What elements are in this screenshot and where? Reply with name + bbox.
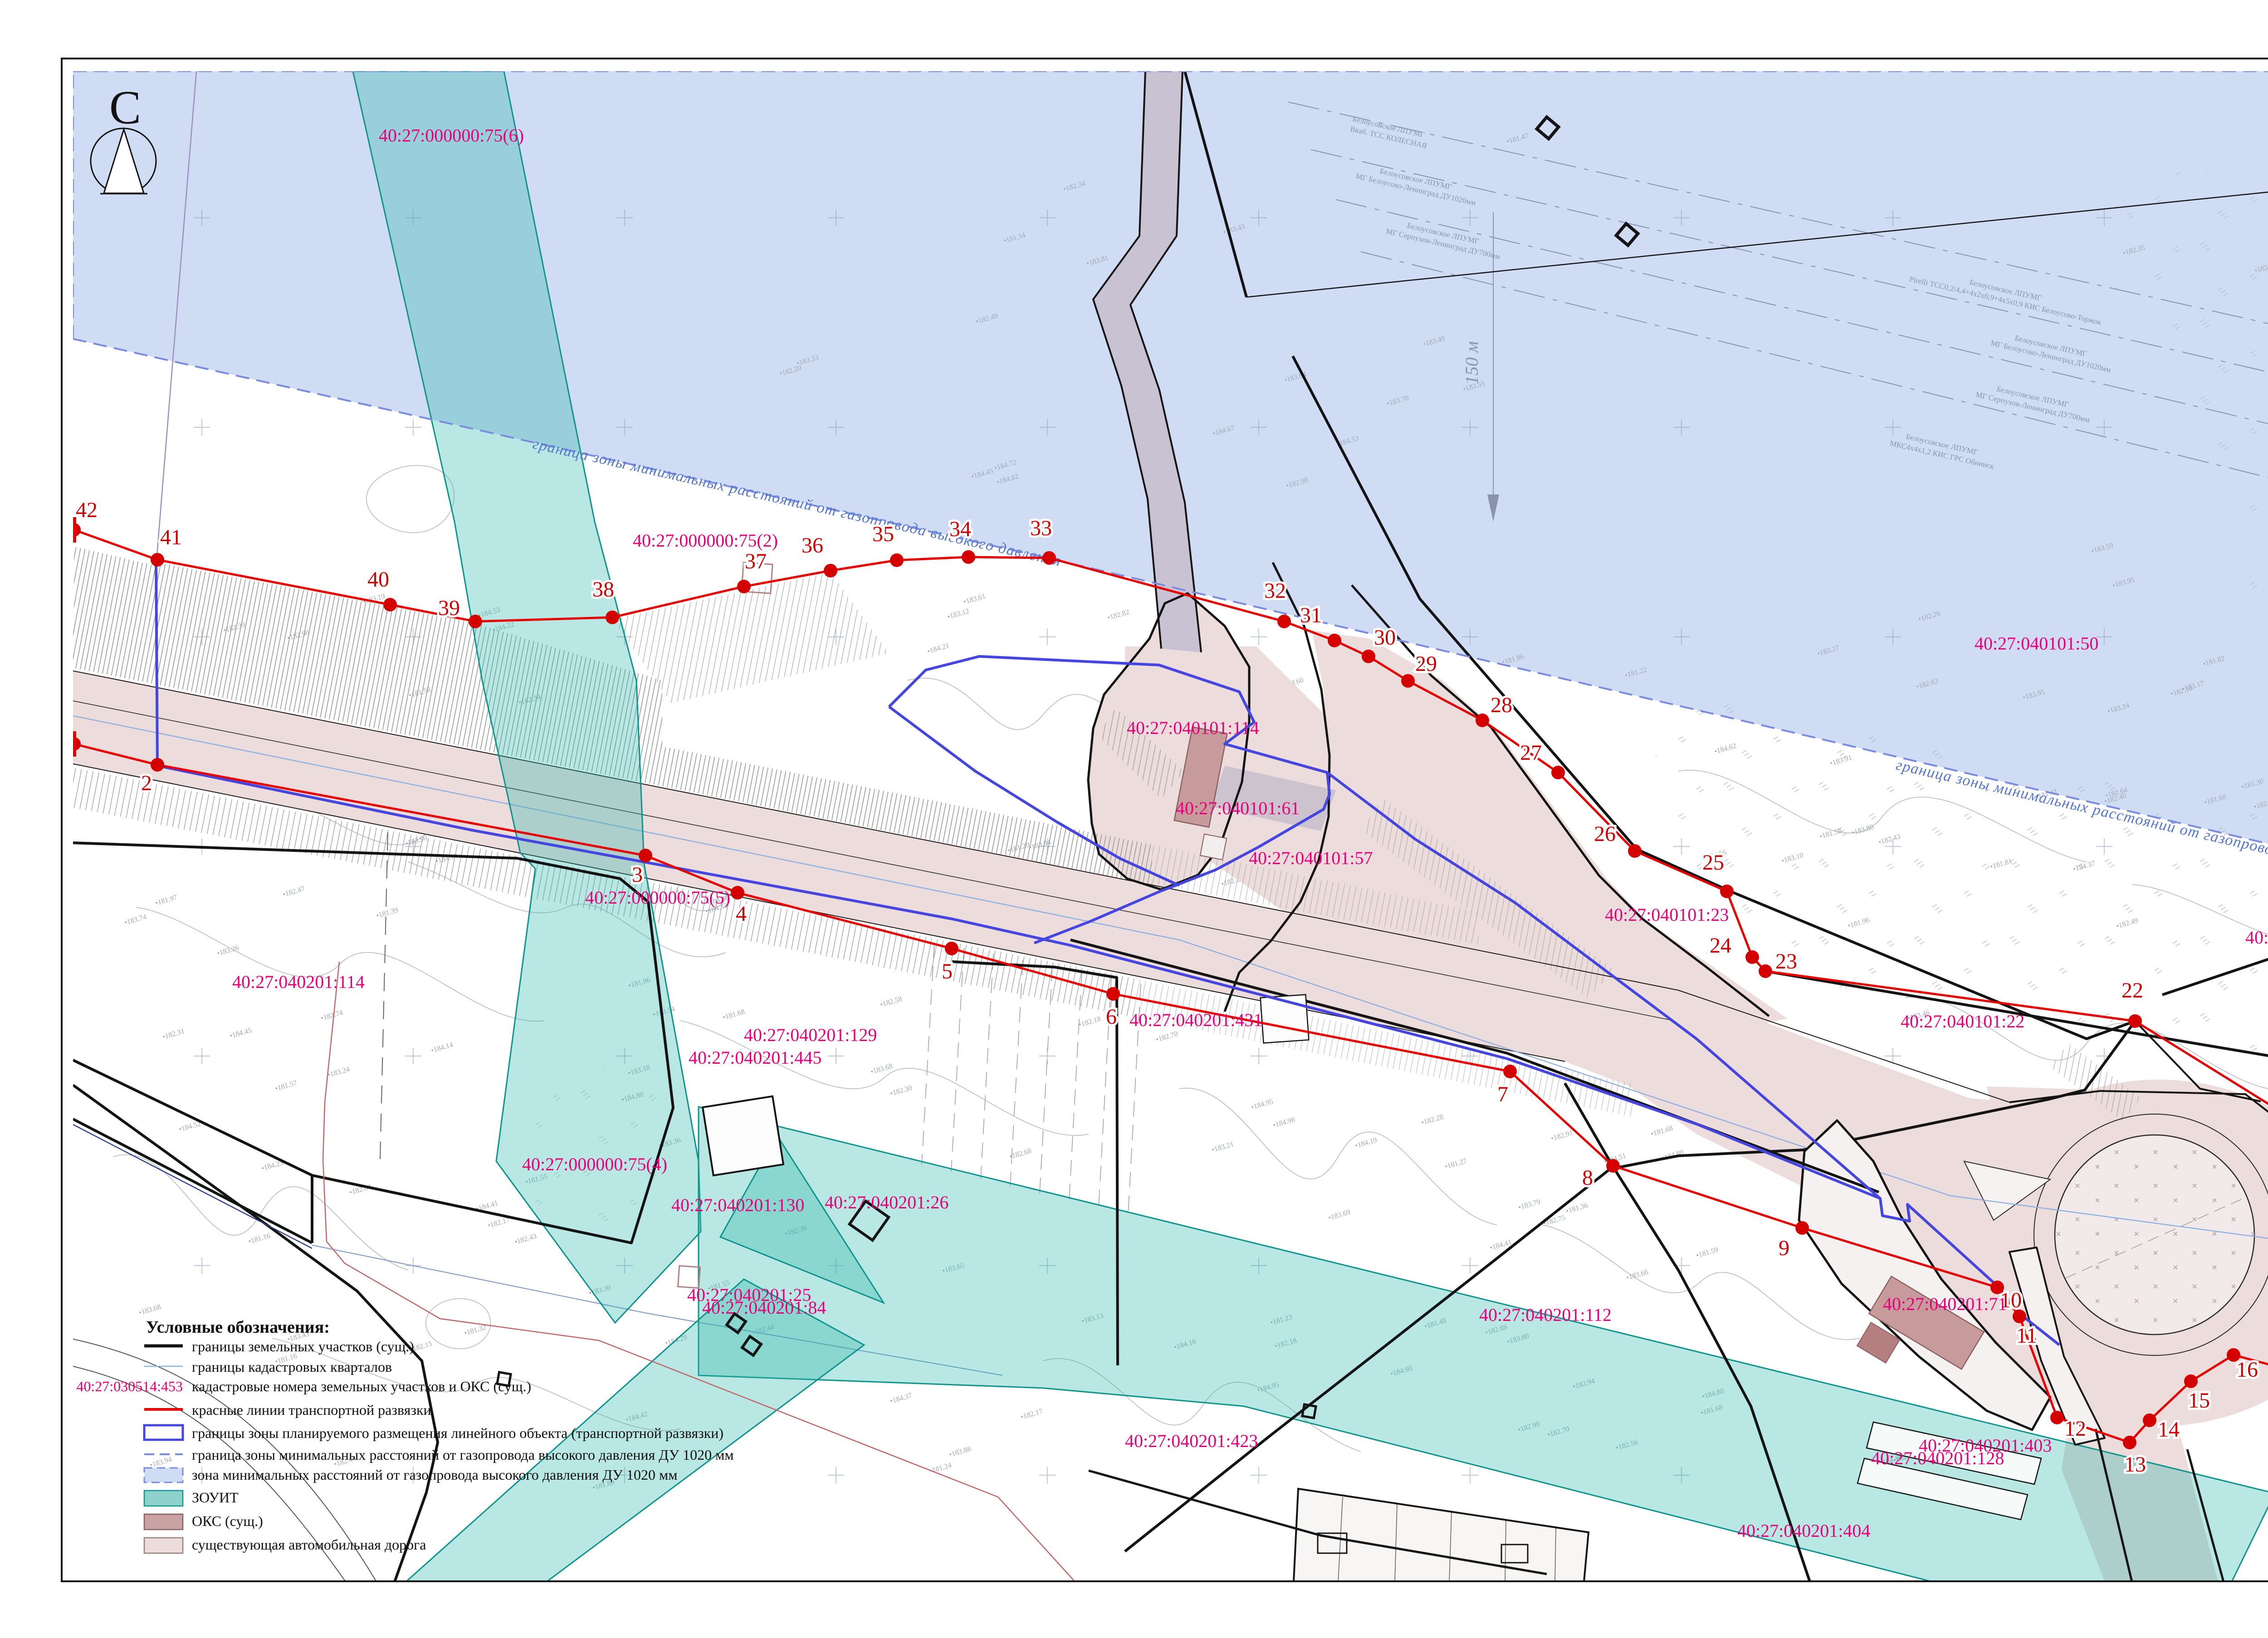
svg-text:14: 14 [2158, 1418, 2180, 1442]
svg-text:13: 13 [2124, 1452, 2146, 1477]
svg-text:24: 24 [1710, 934, 1731, 958]
svg-text:27: 27 [1520, 741, 1542, 765]
svg-text:40:27:040201:128: 40:27:040201:128 [1871, 1448, 2004, 1468]
svg-text:40:27:040101:57: 40:27:040101:57 [1249, 848, 1373, 868]
svg-text:40:27:040201:404: 40:27:040201:404 [1737, 1521, 1870, 1541]
svg-text:37: 37 [745, 549, 767, 573]
svg-text:границы земельных участков (су: границы земельных участков (сущ.) [192, 1338, 414, 1354]
svg-text:40:27:040201:112: 40:27:040201:112 [1479, 1305, 1612, 1325]
svg-text:40:27:000000:75(6): 40:27:000000:75(6) [379, 125, 524, 146]
svg-text:8: 8 [1582, 1166, 1593, 1190]
svg-text:4: 4 [736, 902, 747, 926]
svg-text:32: 32 [1264, 579, 1286, 603]
svg-text:6: 6 [1106, 1005, 1117, 1029]
svg-text:кадастровые номера земельных у: кадастровые номера земельных участков и … [192, 1378, 531, 1394]
svg-text:28: 28 [1491, 693, 1512, 717]
svg-text:40:27:040101:114: 40:27:040101:114 [1127, 718, 1259, 738]
svg-text:29: 29 [1415, 652, 1437, 676]
svg-text:40:27:040101:50: 40:27:040101:50 [1975, 633, 2098, 654]
svg-text:16: 16 [2236, 1358, 2258, 1382]
svg-text:40:27:000000:75(4): 40:27:000000:75(4) [522, 1154, 667, 1174]
svg-text:31: 31 [1300, 603, 1322, 627]
svg-text:зона минимальных расстояний от: зона минимальных расстояний от газопрово… [192, 1467, 677, 1483]
svg-text:30: 30 [1374, 626, 1396, 650]
svg-text:40:27:000000:75(5): 40:27:000000:75(5) [585, 887, 730, 908]
svg-text:красные линии транспортной раз: красные линии транспортной развязки [192, 1402, 431, 1418]
svg-text:41: 41 [160, 525, 182, 549]
svg-text:40:27:040201:423: 40:27:040201:423 [1125, 1431, 1258, 1451]
svg-text:7: 7 [1497, 1082, 1508, 1106]
svg-text:36: 36 [802, 533, 823, 557]
svg-text:9: 9 [1779, 1236, 1789, 1260]
svg-text:11: 11 [2016, 1324, 2037, 1348]
svg-text:40:27:000000:75(2): 40:27:000000:75(2) [633, 530, 778, 551]
svg-text:40:27:040201:71: 40:27:040201:71 [1883, 1294, 2007, 1314]
svg-text:40: 40 [367, 567, 389, 592]
svg-text:40:27:040101:22: 40:27:040101:22 [1901, 1011, 2024, 1032]
svg-text:границы зоны планируемого разм: границы зоны планируемого размещения лин… [192, 1425, 723, 1441]
svg-text:40:27:040201:26: 40:27:040201:26 [825, 1192, 948, 1213]
svg-text:38: 38 [592, 577, 614, 601]
svg-text:40:27:040201:114: 40:27:040201:114 [232, 972, 365, 992]
svg-text:40:27:040201:445: 40:27:040201:445 [689, 1047, 821, 1068]
svg-text:граница зоны минимальных расст: граница зоны минимальных расстояний от г… [192, 1447, 734, 1463]
svg-text:40:27:040201:431: 40:27:040201:431 [1129, 1010, 1262, 1030]
svg-text:150 м: 150 м [1461, 341, 1482, 385]
svg-text:23: 23 [1775, 949, 1797, 973]
svg-text:40:27:040201:84: 40:27:040201:84 [702, 1297, 826, 1318]
svg-text:40:27:040101:61: 40:27:040101:61 [1176, 798, 1300, 818]
svg-text:5: 5 [942, 959, 953, 983]
svg-text:40:27:040101:23: 40:27:040101:23 [1605, 905, 1729, 925]
svg-text:2: 2 [141, 771, 152, 795]
svg-text:40:27:040101:51: 40:27:040101:51 [2245, 927, 2268, 948]
svg-text:40:27:040201:129: 40:27:040201:129 [744, 1025, 877, 1045]
svg-text:40:27:030514:453: 40:27:030514:453 [76, 1378, 183, 1394]
svg-text:границы кадастровых кварталов: границы кадастровых кварталов [192, 1359, 392, 1375]
svg-text:39: 39 [438, 596, 460, 620]
svg-text:15: 15 [2188, 1389, 2210, 1413]
svg-text:34: 34 [949, 517, 971, 541]
svg-text:22: 22 [2121, 978, 2143, 1002]
svg-text:С: С [109, 81, 141, 134]
svg-text:12: 12 [2064, 1417, 2086, 1441]
svg-text:3: 3 [632, 863, 643, 887]
svg-text:Условные обозначения:: Условные обозначения: [146, 1318, 330, 1337]
svg-text:ЗОУИТ: ЗОУИТ [192, 1489, 239, 1506]
svg-text:существующая автомобильная дор: существующая автомобильная дорога [192, 1536, 426, 1553]
svg-text:ОКС (сущ.): ОКС (сущ.) [192, 1513, 263, 1529]
svg-text:33: 33 [1030, 516, 1052, 540]
svg-text:42: 42 [76, 498, 98, 522]
svg-text:40:27:040201:130: 40:27:040201:130 [671, 1195, 804, 1215]
svg-text:26: 26 [1594, 822, 1616, 846]
svg-text:35: 35 [872, 522, 894, 546]
svg-text:25: 25 [1702, 851, 1724, 875]
